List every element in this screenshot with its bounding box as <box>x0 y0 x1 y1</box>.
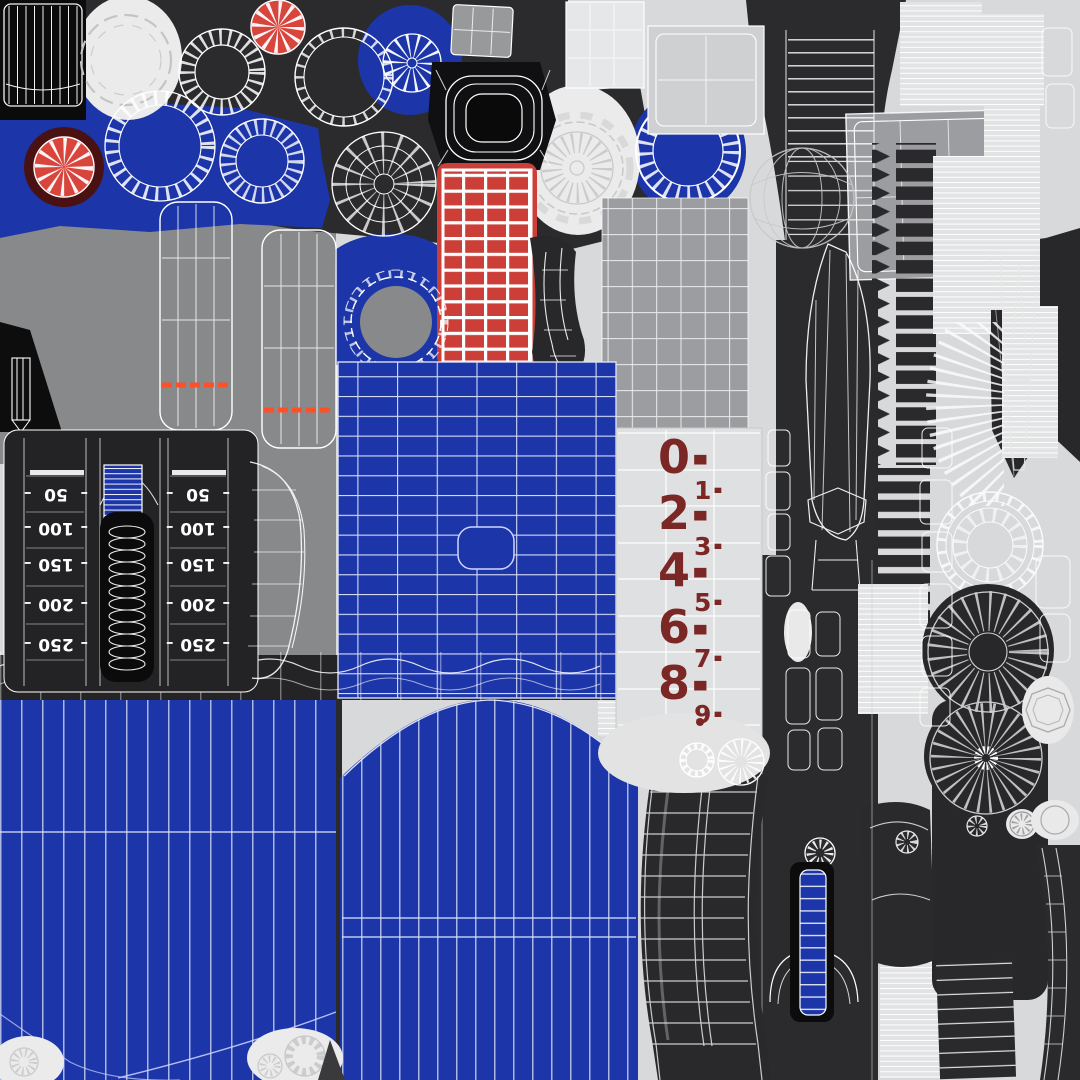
counter-foot-wheels <box>598 713 770 793</box>
uv-texture-atlas: –50– –100– –150– –200– –250– –50– –100– … <box>0 0 1080 1080</box>
red-wheel-on-blue <box>24 127 104 207</box>
center-blue-grid-panel <box>338 362 616 698</box>
red-grid-panel <box>437 163 537 367</box>
counter-dash: - <box>713 528 722 565</box>
scale-value: –100– <box>24 517 88 539</box>
serrated-rail <box>872 143 936 658</box>
atlas-art <box>0 0 1080 1080</box>
counter-digit: 9- <box>694 702 723 727</box>
counter-dash: - <box>713 696 722 733</box>
scale-value: –50– <box>24 483 88 505</box>
scale-value: –150– <box>24 553 88 575</box>
scale-value: –250– <box>24 633 88 655</box>
scale-value: –50– <box>166 483 230 505</box>
scale-value: –250– <box>166 633 230 655</box>
magazine-band <box>640 770 770 1080</box>
left-blue-panel <box>0 700 336 1080</box>
scale-value: –200– <box>166 593 230 615</box>
squircle-piece <box>428 62 556 172</box>
gray-square-small <box>451 4 514 57</box>
counter-digit: 2- <box>658 490 709 536</box>
neck-ribs <box>786 30 874 246</box>
counter-digit: 4- <box>658 547 709 593</box>
counter-dash: - <box>713 640 722 677</box>
scale-value: –100– <box>166 517 230 539</box>
counter-dash: - <box>713 584 722 621</box>
gray-square-mid <box>648 26 764 134</box>
gray-grid-panel <box>602 198 748 430</box>
scale-value: –200– <box>24 593 88 615</box>
scale-value: –150– <box>166 553 230 575</box>
dome-blue-panel <box>340 699 638 1080</box>
counter-dash: - <box>713 472 722 509</box>
